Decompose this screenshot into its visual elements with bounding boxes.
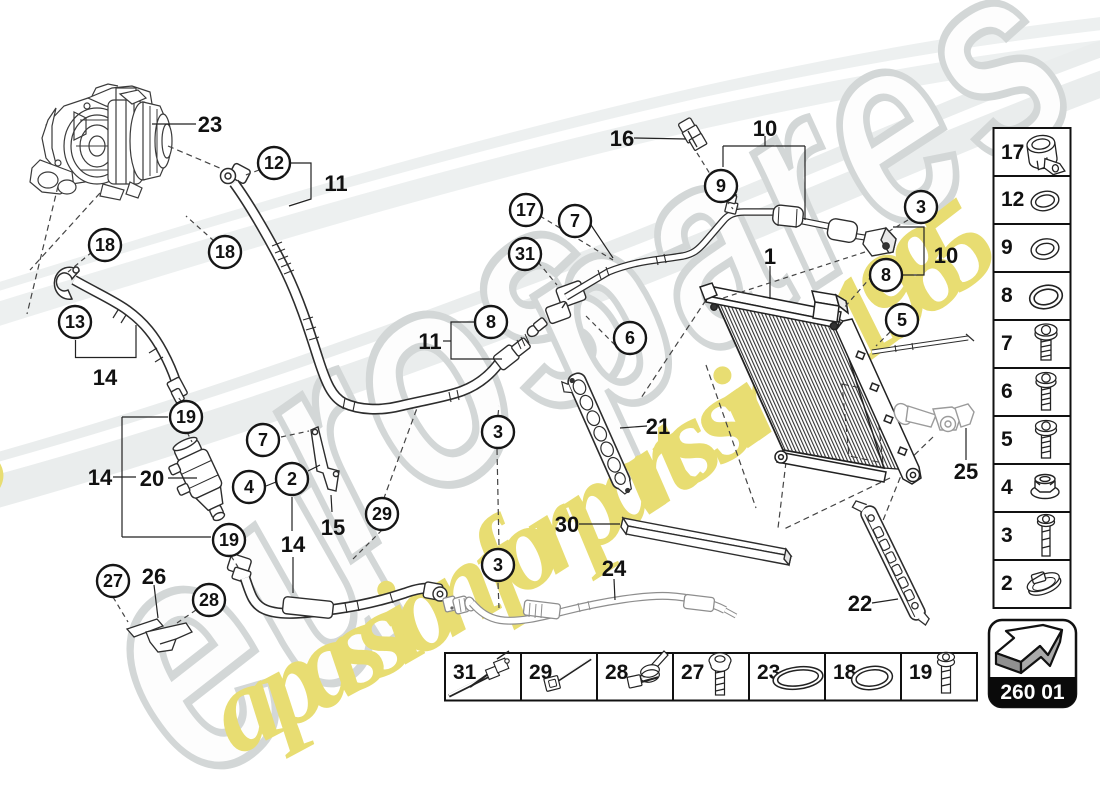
- svg-text:19: 19: [219, 530, 239, 550]
- svg-text:26: 26: [142, 564, 166, 589]
- svg-text:6: 6: [1001, 380, 1013, 403]
- svg-text:7: 7: [570, 211, 580, 231]
- svg-text:10: 10: [753, 116, 777, 141]
- svg-text:1: 1: [764, 244, 776, 269]
- svg-text:6: 6: [625, 328, 635, 348]
- svg-text:4: 4: [1001, 476, 1013, 499]
- svg-text:8: 8: [881, 265, 891, 285]
- svg-text:260 01: 260 01: [1000, 681, 1065, 704]
- svg-text:8: 8: [486, 312, 496, 332]
- svg-text:3: 3: [916, 197, 926, 217]
- svg-text:31: 31: [453, 661, 477, 684]
- svg-text:29: 29: [372, 504, 392, 524]
- svg-text:15: 15: [321, 515, 345, 540]
- svg-text:25: 25: [954, 459, 978, 484]
- svg-text:14: 14: [281, 532, 306, 557]
- svg-text:8: 8: [1001, 284, 1013, 307]
- svg-text:14: 14: [93, 365, 118, 390]
- svg-text:7: 7: [1001, 332, 1013, 355]
- svg-text:18: 18: [215, 242, 235, 262]
- svg-text:5: 5: [1001, 428, 1013, 451]
- svg-text:13: 13: [65, 312, 85, 332]
- svg-text:9: 9: [716, 176, 726, 196]
- svg-text:12: 12: [264, 153, 284, 173]
- svg-text:2: 2: [287, 469, 297, 489]
- svg-text:27: 27: [103, 571, 123, 591]
- svg-text:16: 16: [610, 126, 634, 151]
- svg-text:9: 9: [1001, 236, 1013, 259]
- svg-text:3: 3: [493, 555, 503, 575]
- svg-text:31: 31: [515, 244, 535, 264]
- svg-text:22: 22: [848, 591, 872, 616]
- svg-text:28: 28: [605, 661, 629, 684]
- svg-text:18: 18: [95, 235, 115, 255]
- svg-text:21: 21: [646, 414, 670, 439]
- svg-text:3: 3: [1001, 524, 1013, 547]
- svg-text:28: 28: [199, 590, 219, 610]
- svg-text:17: 17: [516, 200, 536, 220]
- svg-text:11: 11: [418, 329, 441, 354]
- svg-text:19: 19: [176, 407, 196, 427]
- svg-text:3: 3: [493, 422, 503, 442]
- svg-text:17: 17: [1001, 141, 1024, 164]
- svg-text:27: 27: [681, 661, 704, 684]
- svg-text:24: 24: [602, 556, 627, 581]
- svg-text:20: 20: [140, 466, 164, 491]
- svg-text:10: 10: [934, 243, 958, 268]
- svg-text:19: 19: [909, 661, 932, 684]
- svg-text:2: 2: [1001, 572, 1013, 595]
- svg-text:30: 30: [555, 512, 579, 537]
- svg-text:12: 12: [1001, 188, 1024, 211]
- svg-text:23: 23: [198, 112, 222, 137]
- svg-text:4: 4: [244, 477, 254, 497]
- svg-text:14: 14: [88, 465, 113, 490]
- svg-text:11: 11: [324, 171, 347, 196]
- svg-text:7: 7: [258, 430, 268, 450]
- svg-text:5: 5: [897, 310, 907, 330]
